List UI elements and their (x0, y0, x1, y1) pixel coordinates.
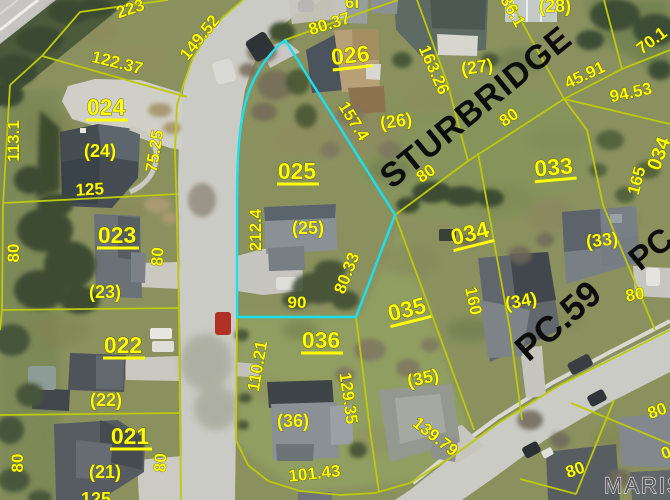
svg-text:(22): (22) (90, 390, 122, 410)
svg-text:125: 125 (75, 179, 104, 199)
svg-text:80: 80 (4, 244, 23, 263)
svg-text:(36): (36) (277, 411, 309, 431)
svg-text:(28): (28) (539, 0, 571, 16)
svg-text:80: 80 (624, 284, 646, 306)
svg-text:021: 021 (111, 423, 150, 449)
svg-text:80: 80 (148, 247, 168, 267)
svg-text:212.4: 212.4 (246, 208, 265, 251)
svg-text:(24): (24) (84, 141, 116, 161)
svg-text:113.1: 113.1 (4, 120, 23, 162)
svg-text:023: 023 (98, 222, 136, 248)
svg-text:125: 125 (81, 489, 111, 500)
svg-text:(21): (21) (89, 462, 121, 482)
svg-text:(33): (33) (585, 228, 619, 251)
svg-text:024: 024 (87, 94, 126, 120)
svg-text:90: 90 (288, 293, 307, 312)
svg-text:(25): (25) (292, 218, 324, 238)
svg-text:033: 033 (533, 152, 573, 181)
svg-text:80: 80 (8, 454, 27, 473)
svg-text:036: 036 (302, 327, 340, 353)
svg-text:6I: 6I (345, 0, 359, 12)
svg-text:80: 80 (151, 453, 171, 473)
svg-text:MARIS: MARIS (604, 473, 670, 498)
svg-text:022: 022 (104, 332, 142, 358)
svg-text:(23): (23) (89, 282, 121, 302)
svg-text:025: 025 (278, 158, 317, 184)
